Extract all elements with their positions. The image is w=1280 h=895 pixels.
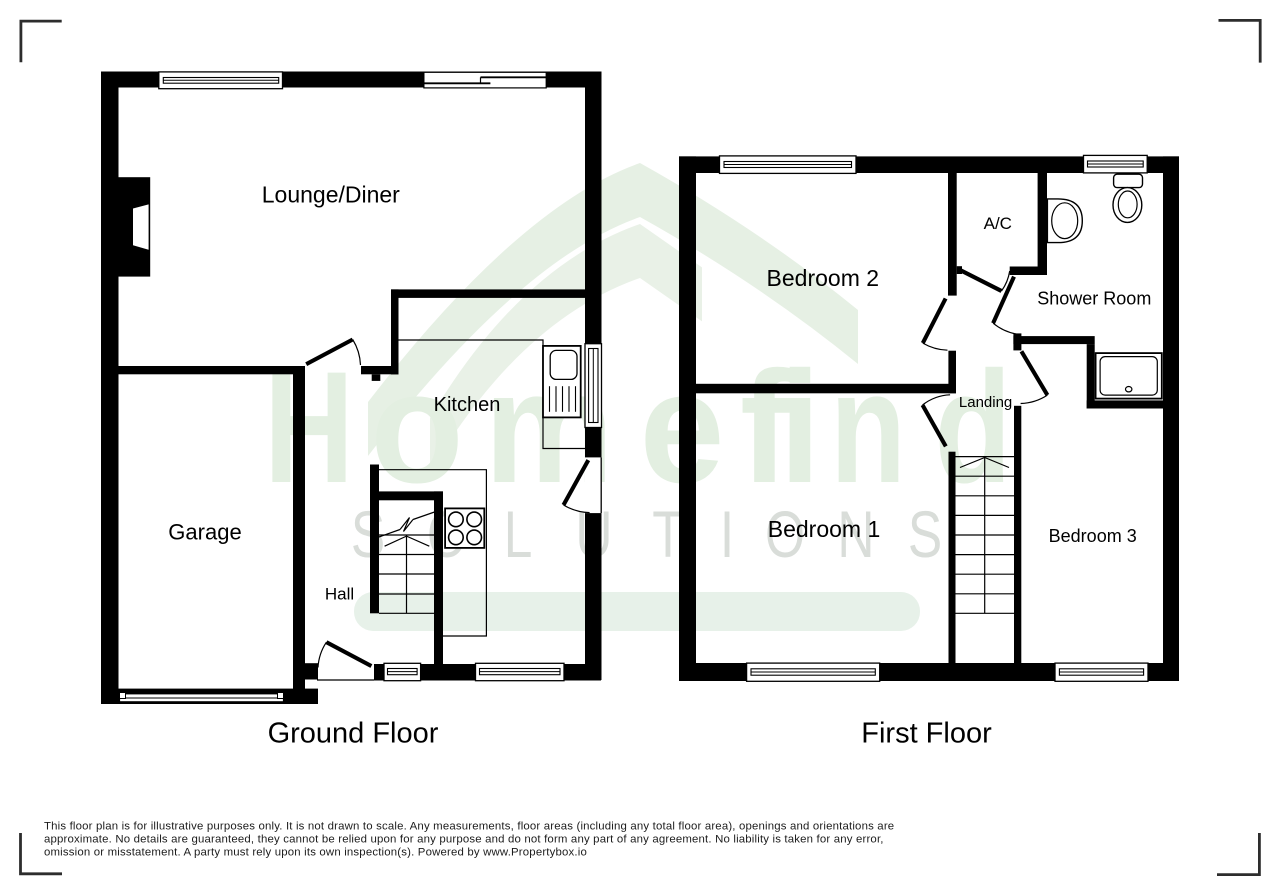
svg-text:I: I: [720, 497, 734, 572]
svg-text:omission or misstatement. A pa: omission or misstatement. A party must r…: [44, 847, 587, 859]
svg-text:Landing: Landing: [959, 394, 1012, 411]
svg-text:n: n: [830, 339, 906, 516]
svg-text:Ground Floor: Ground Floor: [268, 718, 439, 750]
svg-text:Hall: Hall: [325, 584, 354, 603]
svg-text:S: S: [351, 497, 385, 572]
svg-text:Bedroom 3: Bedroom 3: [1049, 526, 1137, 546]
svg-text:S: S: [908, 497, 942, 572]
svg-text:Lounge/Diner: Lounge/Diner: [262, 181, 400, 207]
svg-text:This floor plan is for illustr: This floor plan is for illustrative purp…: [44, 821, 894, 833]
svg-text:o: o: [370, 339, 463, 516]
svg-text:approximate. No details are gu: approximate. No details are guaranteed, …: [44, 834, 884, 846]
svg-text:L: L: [504, 497, 533, 572]
svg-text:d: d: [935, 339, 1012, 516]
svg-text:Bedroom 1: Bedroom 1: [768, 516, 881, 542]
svg-text:Shower Room: Shower Room: [1037, 289, 1151, 309]
svg-text:A/C: A/C: [984, 214, 1012, 233]
svg-text:First Floor: First Floor: [861, 718, 992, 750]
svg-text:Bedroom 2: Bedroom 2: [767, 265, 880, 291]
svg-text:Kitchen: Kitchen: [434, 394, 501, 416]
svg-text:Garage: Garage: [168, 520, 241, 545]
svg-text:i: i: [779, 338, 821, 516]
